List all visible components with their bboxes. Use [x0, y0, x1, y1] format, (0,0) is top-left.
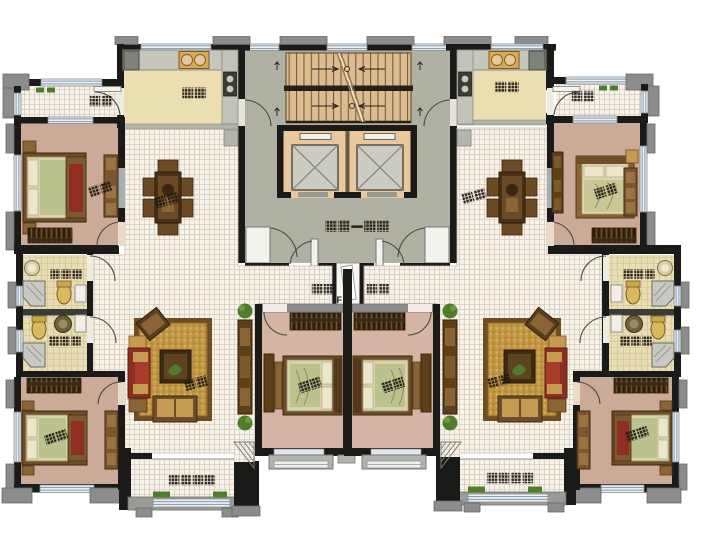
svg-text:F: F: [337, 295, 343, 305]
